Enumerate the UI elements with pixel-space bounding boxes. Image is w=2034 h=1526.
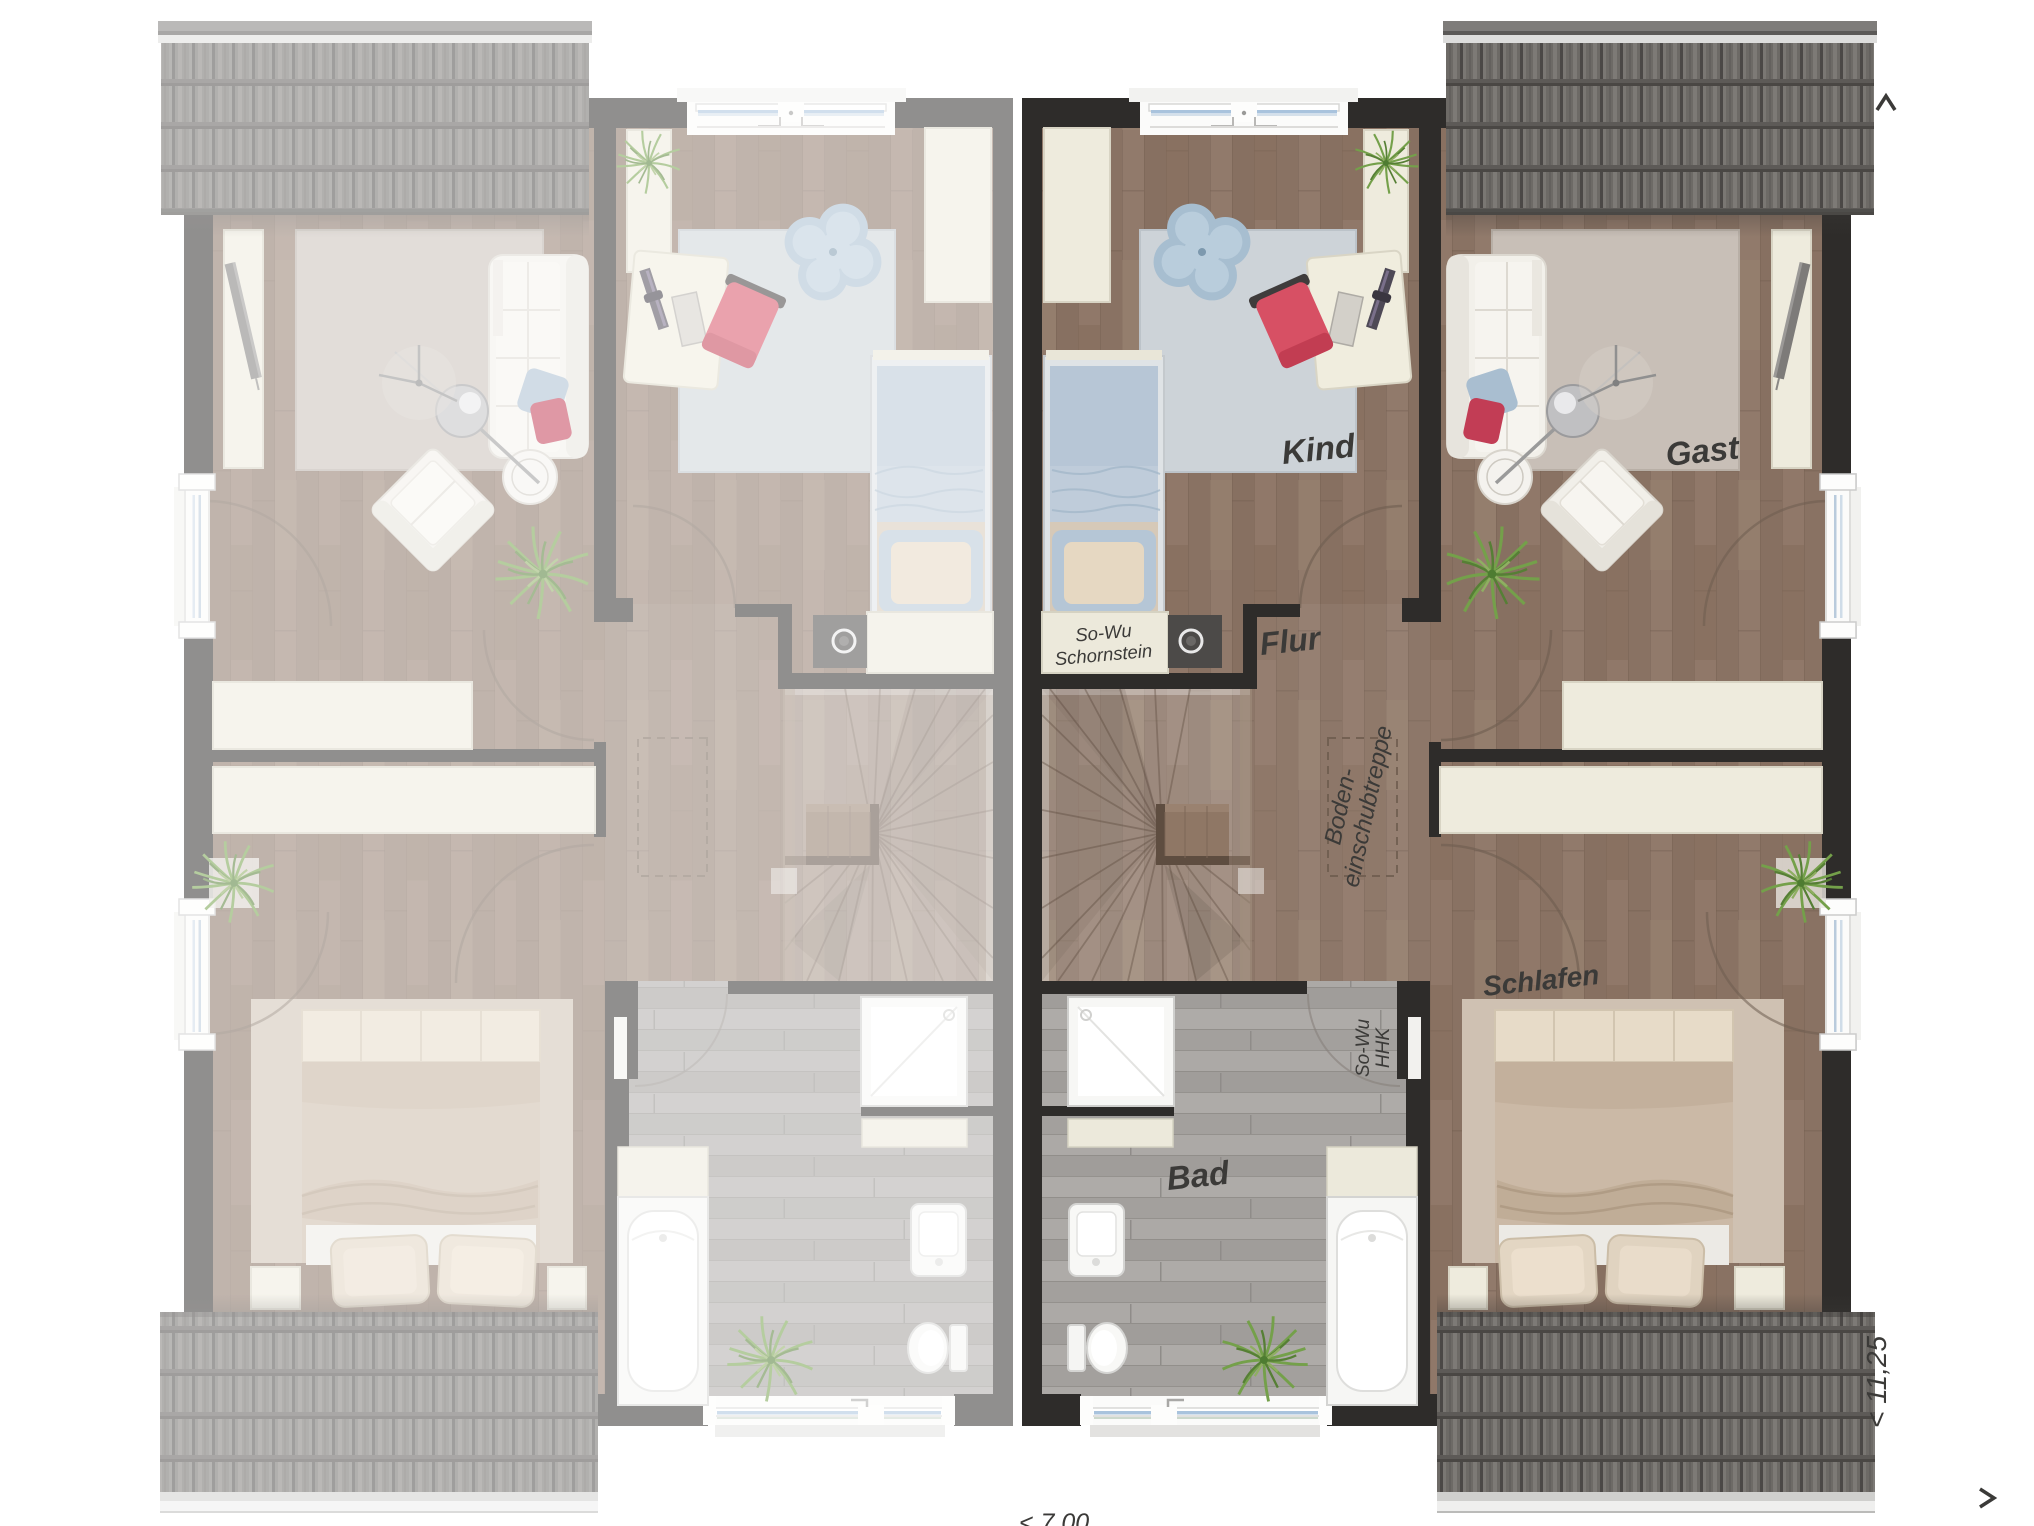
svg-text:So-Wu: So-Wu	[1353, 1019, 1374, 1078]
svg-text:HHK: HHK	[1373, 1027, 1394, 1068]
svg-text:Kind: Kind	[1280, 426, 1358, 471]
svg-text:< 7,00: < 7,00	[1019, 1509, 1089, 1526]
svg-text:Bad: Bad	[1165, 1154, 1232, 1197]
svg-text:< 11,25: < 11,25	[1861, 1335, 1892, 1428]
svg-text:Gast: Gast	[1664, 428, 1743, 473]
svg-text:Flur: Flur	[1258, 620, 1323, 662]
